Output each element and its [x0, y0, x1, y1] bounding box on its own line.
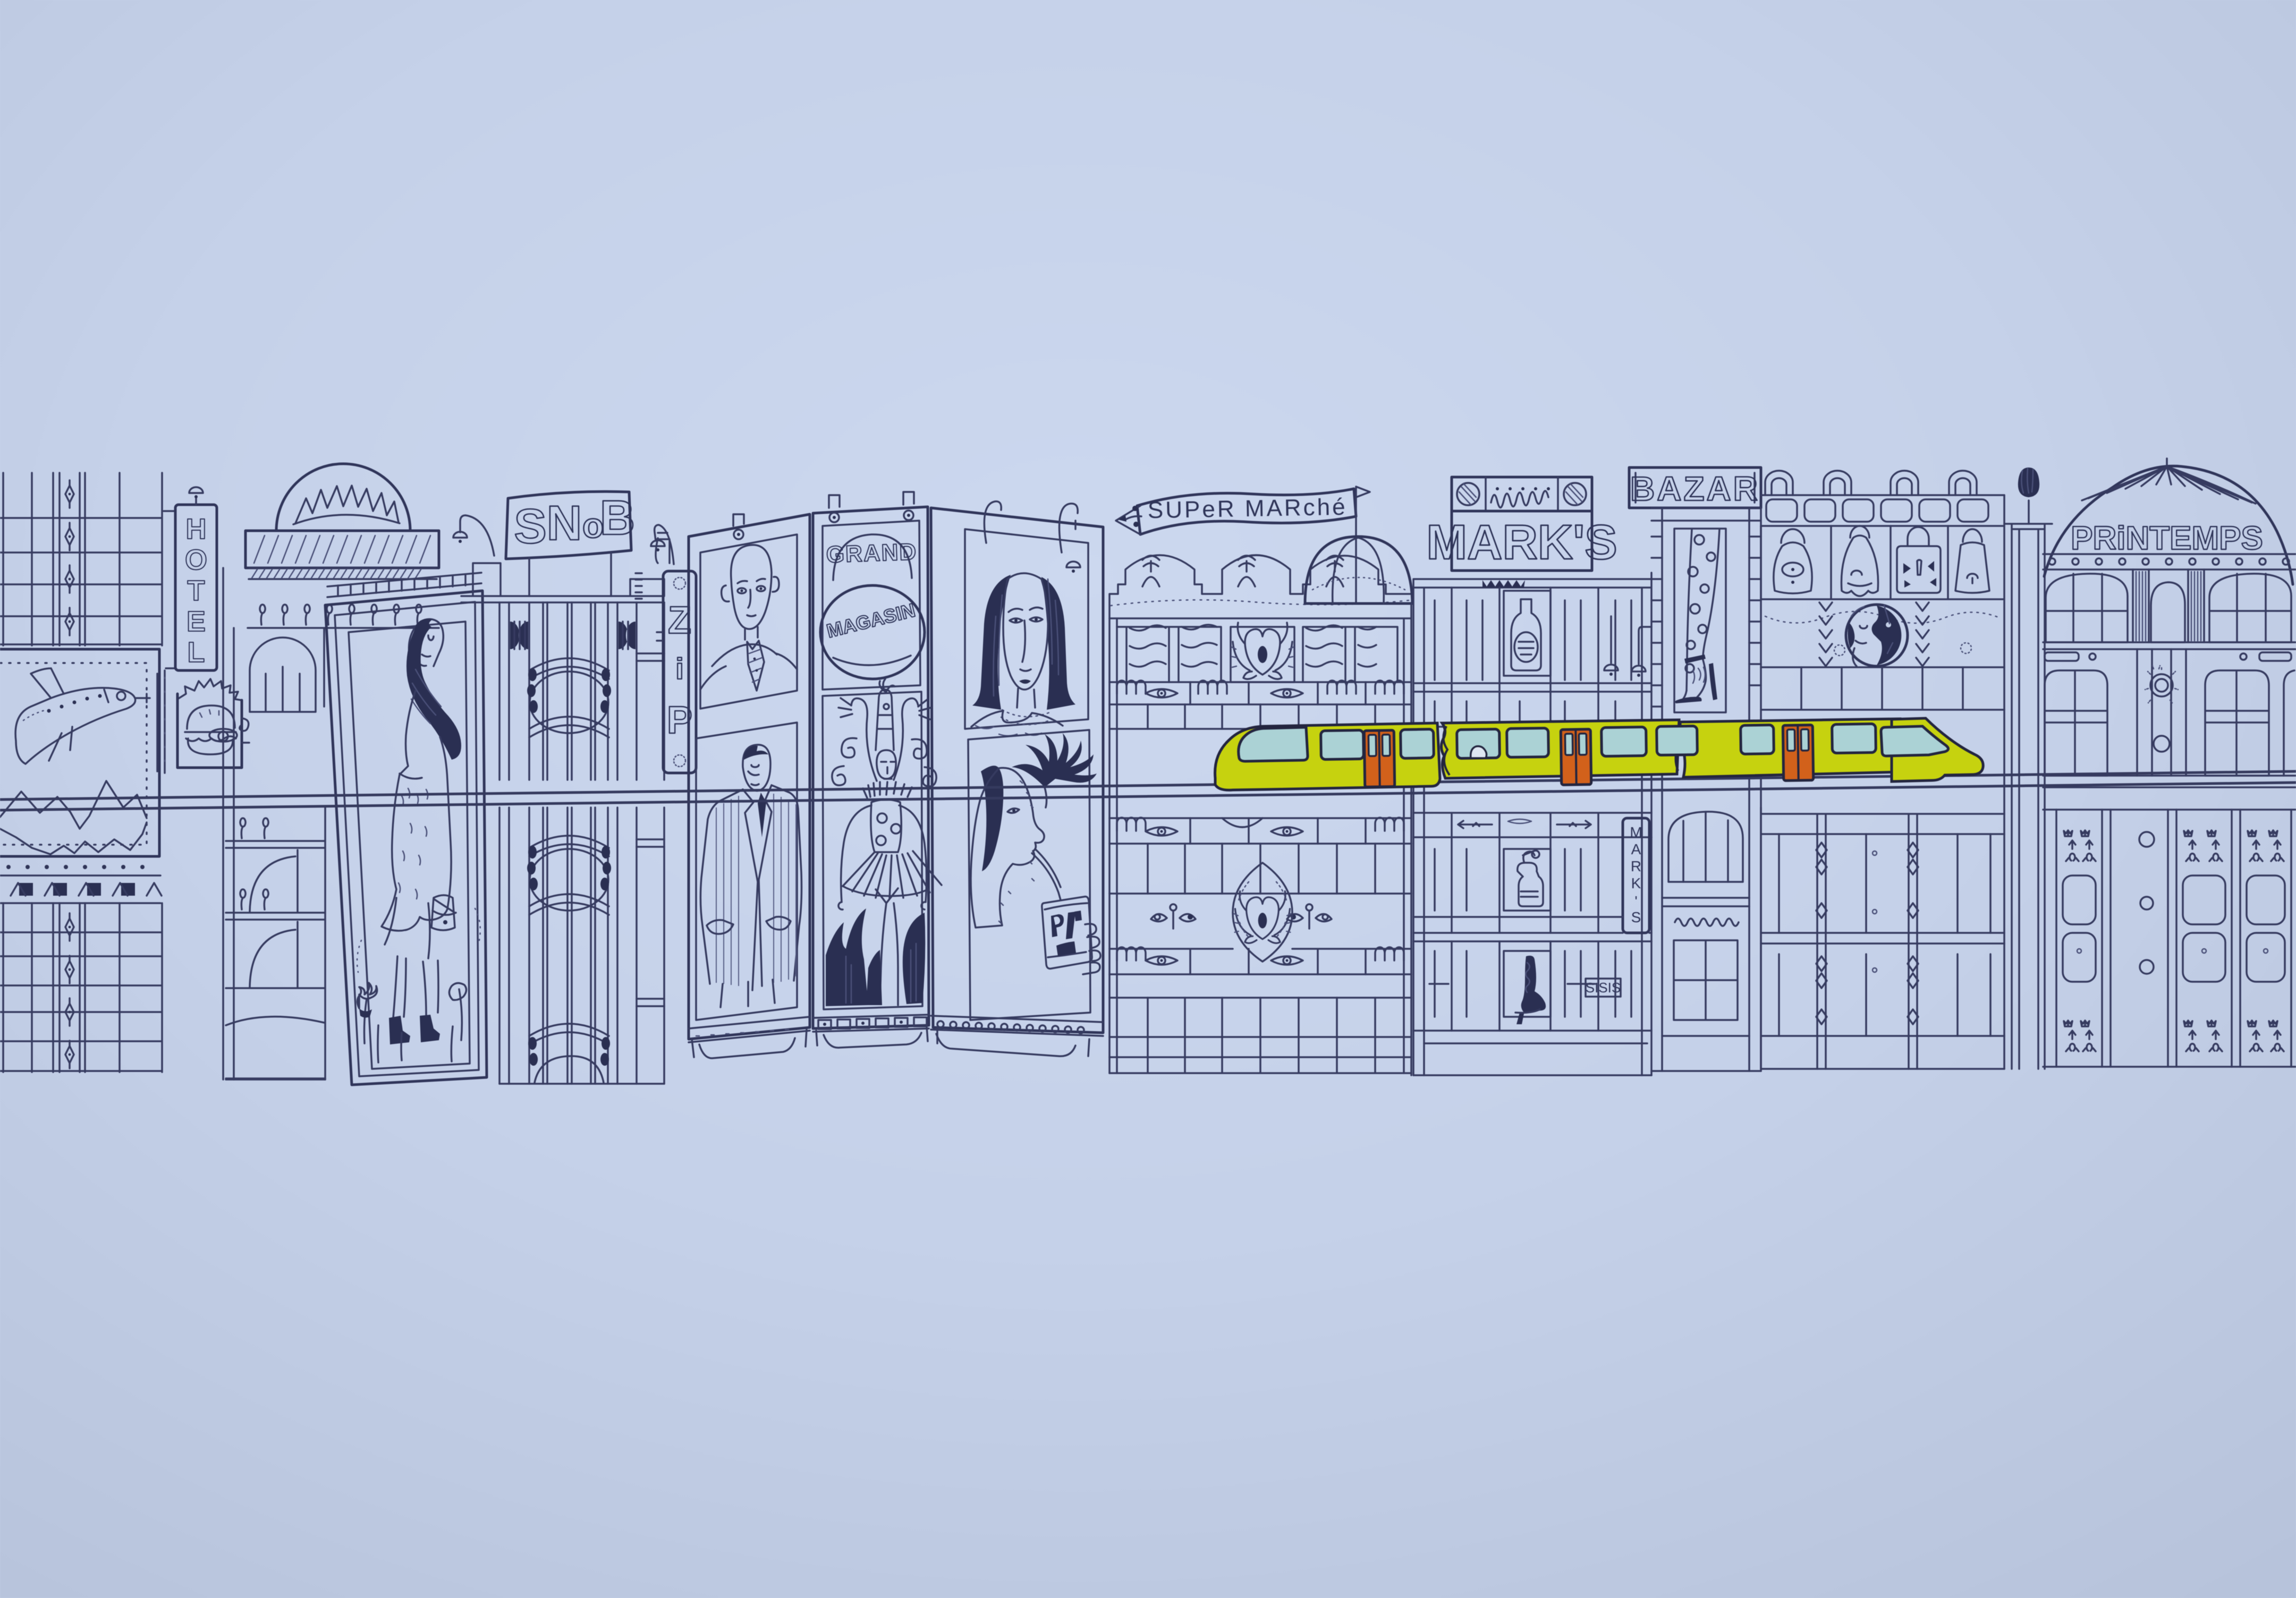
svg-text:O: O	[185, 544, 207, 576]
svg-text:L: L	[188, 636, 205, 668]
svg-text:S: S	[514, 499, 546, 554]
svg-text:i: i	[675, 652, 684, 685]
svg-text:GRAND: GRAND	[826, 539, 918, 568]
svg-text:H: H	[186, 513, 207, 545]
svg-text:N: N	[547, 496, 582, 550]
svg-text:K: K	[1631, 875, 1641, 891]
svg-text:MARK'S: MARK'S	[1426, 515, 1617, 569]
svg-text:B: B	[600, 491, 635, 545]
svg-text:T: T	[188, 575, 205, 607]
svg-text:E: E	[187, 606, 206, 637]
svg-text:M: M	[1630, 824, 1642, 840]
svg-text:SUPeR MARché: SUPeR MARché	[1148, 494, 1348, 524]
svg-text:A: A	[1631, 841, 1641, 857]
svg-text:BAZAR: BAZAR	[1630, 470, 1760, 508]
svg-text:': '	[1634, 893, 1637, 909]
svg-text:PRiNTEMPS: PRiNTEMPS	[2071, 520, 2263, 557]
svg-text:S: S	[1631, 909, 1641, 925]
svg-text:R: R	[1631, 858, 1641, 874]
